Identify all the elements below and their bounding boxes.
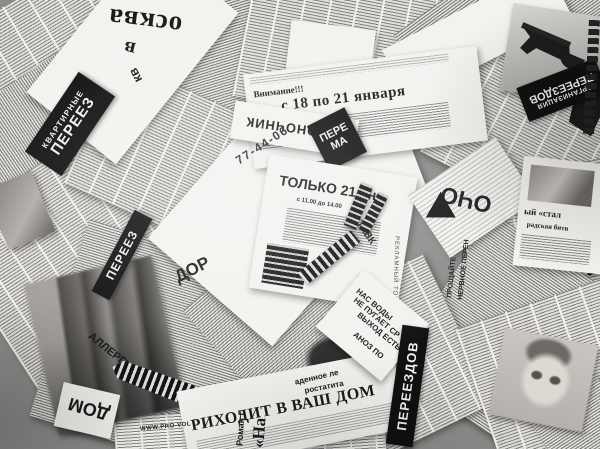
banner-line: ПЕРЕЕЗДОВ — [394, 341, 420, 432]
bitva-subhead: радская битв — [526, 220, 568, 232]
na-title: «На — [248, 399, 271, 448]
schedule-line: с 11.00 до 14.00 — [296, 197, 342, 210]
ad-photo — [261, 243, 309, 289]
article-photo — [527, 164, 594, 206]
stal-headline: ый «стал — [524, 206, 562, 220]
portrait-photo — [488, 328, 598, 433]
newspaper-collage-photo: осква в кв КВАРТИРНЫЕ ПЕРЕЕЗ Внимание!!!… — [0, 0, 600, 449]
fine-print-lines — [519, 234, 591, 265]
stal-article-scrap: ый «стал радская битв — [512, 156, 600, 275]
